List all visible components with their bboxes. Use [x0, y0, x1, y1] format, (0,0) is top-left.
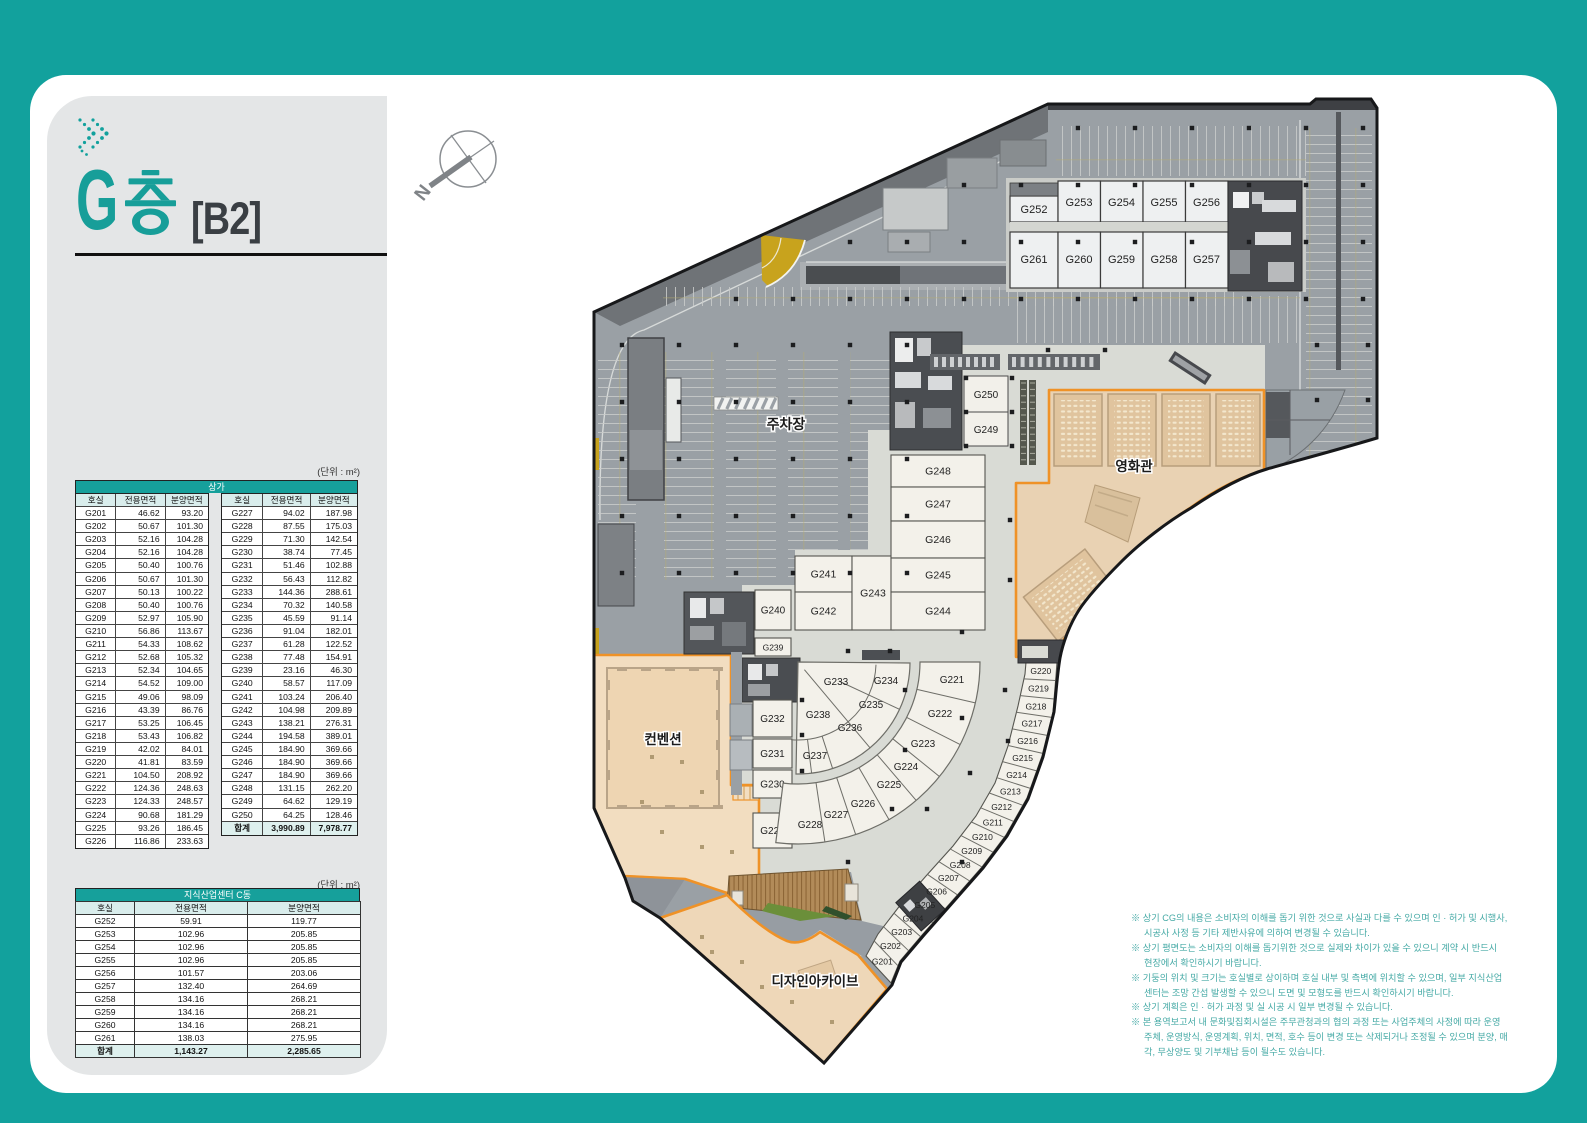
svg-text:G236: G236 — [838, 723, 863, 734]
svg-text:G243: G243 — [860, 588, 886, 600]
svg-text:G233: G233 — [824, 677, 849, 688]
svg-text:주차장: 주차장 — [767, 416, 806, 432]
svg-text:컨벤션: 컨벤션 — [644, 731, 681, 747]
svg-text:G253: G253 — [1066, 197, 1093, 209]
svg-text:G255: G255 — [1151, 197, 1178, 209]
svg-text:G223: G223 — [911, 739, 936, 750]
svg-text:G228: G228 — [798, 820, 823, 831]
svg-text:G227: G227 — [824, 810, 849, 821]
svg-text:디자인아카이브: 디자인아카이브 — [772, 973, 860, 989]
svg-text:G201: G201 — [872, 957, 893, 967]
svg-text:G249: G249 — [974, 425, 999, 436]
svg-text:G222: G222 — [928, 709, 953, 720]
svg-text:G261: G261 — [1021, 254, 1048, 266]
svg-text:G202: G202 — [880, 941, 901, 951]
svg-text:G230: G230 — [760, 780, 785, 791]
svg-text:G221: G221 — [940, 675, 965, 686]
svg-text:G239: G239 — [763, 643, 784, 653]
svg-text:G210: G210 — [972, 832, 993, 842]
svg-text:G234: G234 — [874, 676, 899, 687]
svg-text:G260: G260 — [1066, 254, 1093, 266]
svg-text:G250: G250 — [974, 390, 999, 401]
svg-text:G211: G211 — [983, 818, 1003, 828]
svg-text:G215: G215 — [1012, 753, 1033, 763]
svg-text:G216: G216 — [1017, 736, 1038, 746]
svg-text:G242: G242 — [811, 606, 837, 618]
svg-text:G241: G241 — [811, 569, 837, 581]
svg-text:G224: G224 — [894, 762, 919, 773]
svg-text:G244: G244 — [925, 606, 951, 618]
svg-text:G203: G203 — [891, 927, 912, 937]
svg-text:G237: G237 — [803, 751, 828, 762]
svg-text:G232: G232 — [760, 714, 785, 725]
svg-text:G252: G252 — [1021, 204, 1048, 216]
svg-text:G212: G212 — [991, 802, 1012, 812]
svg-text:영화관: 영화관 — [1115, 458, 1153, 474]
svg-text:G206: G206 — [926, 887, 947, 897]
svg-text:G240: G240 — [761, 606, 786, 617]
svg-text:G204: G204 — [903, 913, 924, 923]
svg-text:G235: G235 — [859, 700, 884, 711]
svg-text:G231: G231 — [760, 749, 785, 760]
svg-text:G214: G214 — [1006, 770, 1027, 780]
svg-text:G205: G205 — [914, 900, 935, 910]
svg-text:G245: G245 — [925, 570, 951, 582]
svg-text:G218: G218 — [1026, 701, 1047, 711]
svg-text:G246: G246 — [925, 534, 951, 546]
svg-text:G238: G238 — [806, 710, 831, 721]
svg-text:G225: G225 — [877, 780, 902, 791]
svg-text:G226: G226 — [851, 799, 876, 810]
svg-text:G219: G219 — [1028, 684, 1049, 694]
svg-text:G248: G248 — [925, 466, 951, 478]
svg-text:G220: G220 — [1030, 666, 1051, 676]
svg-text:G256: G256 — [1193, 197, 1220, 209]
svg-text:G217: G217 — [1022, 719, 1043, 729]
svg-text:G247: G247 — [925, 499, 951, 511]
svg-text:G258: G258 — [1151, 254, 1178, 266]
svg-text:G209: G209 — [961, 846, 982, 856]
svg-text:G254: G254 — [1108, 197, 1135, 209]
svg-text:G259: G259 — [1108, 254, 1135, 266]
svg-text:G257: G257 — [1193, 254, 1220, 266]
svg-text:G213: G213 — [1000, 787, 1021, 797]
svg-text:G207: G207 — [938, 873, 959, 883]
